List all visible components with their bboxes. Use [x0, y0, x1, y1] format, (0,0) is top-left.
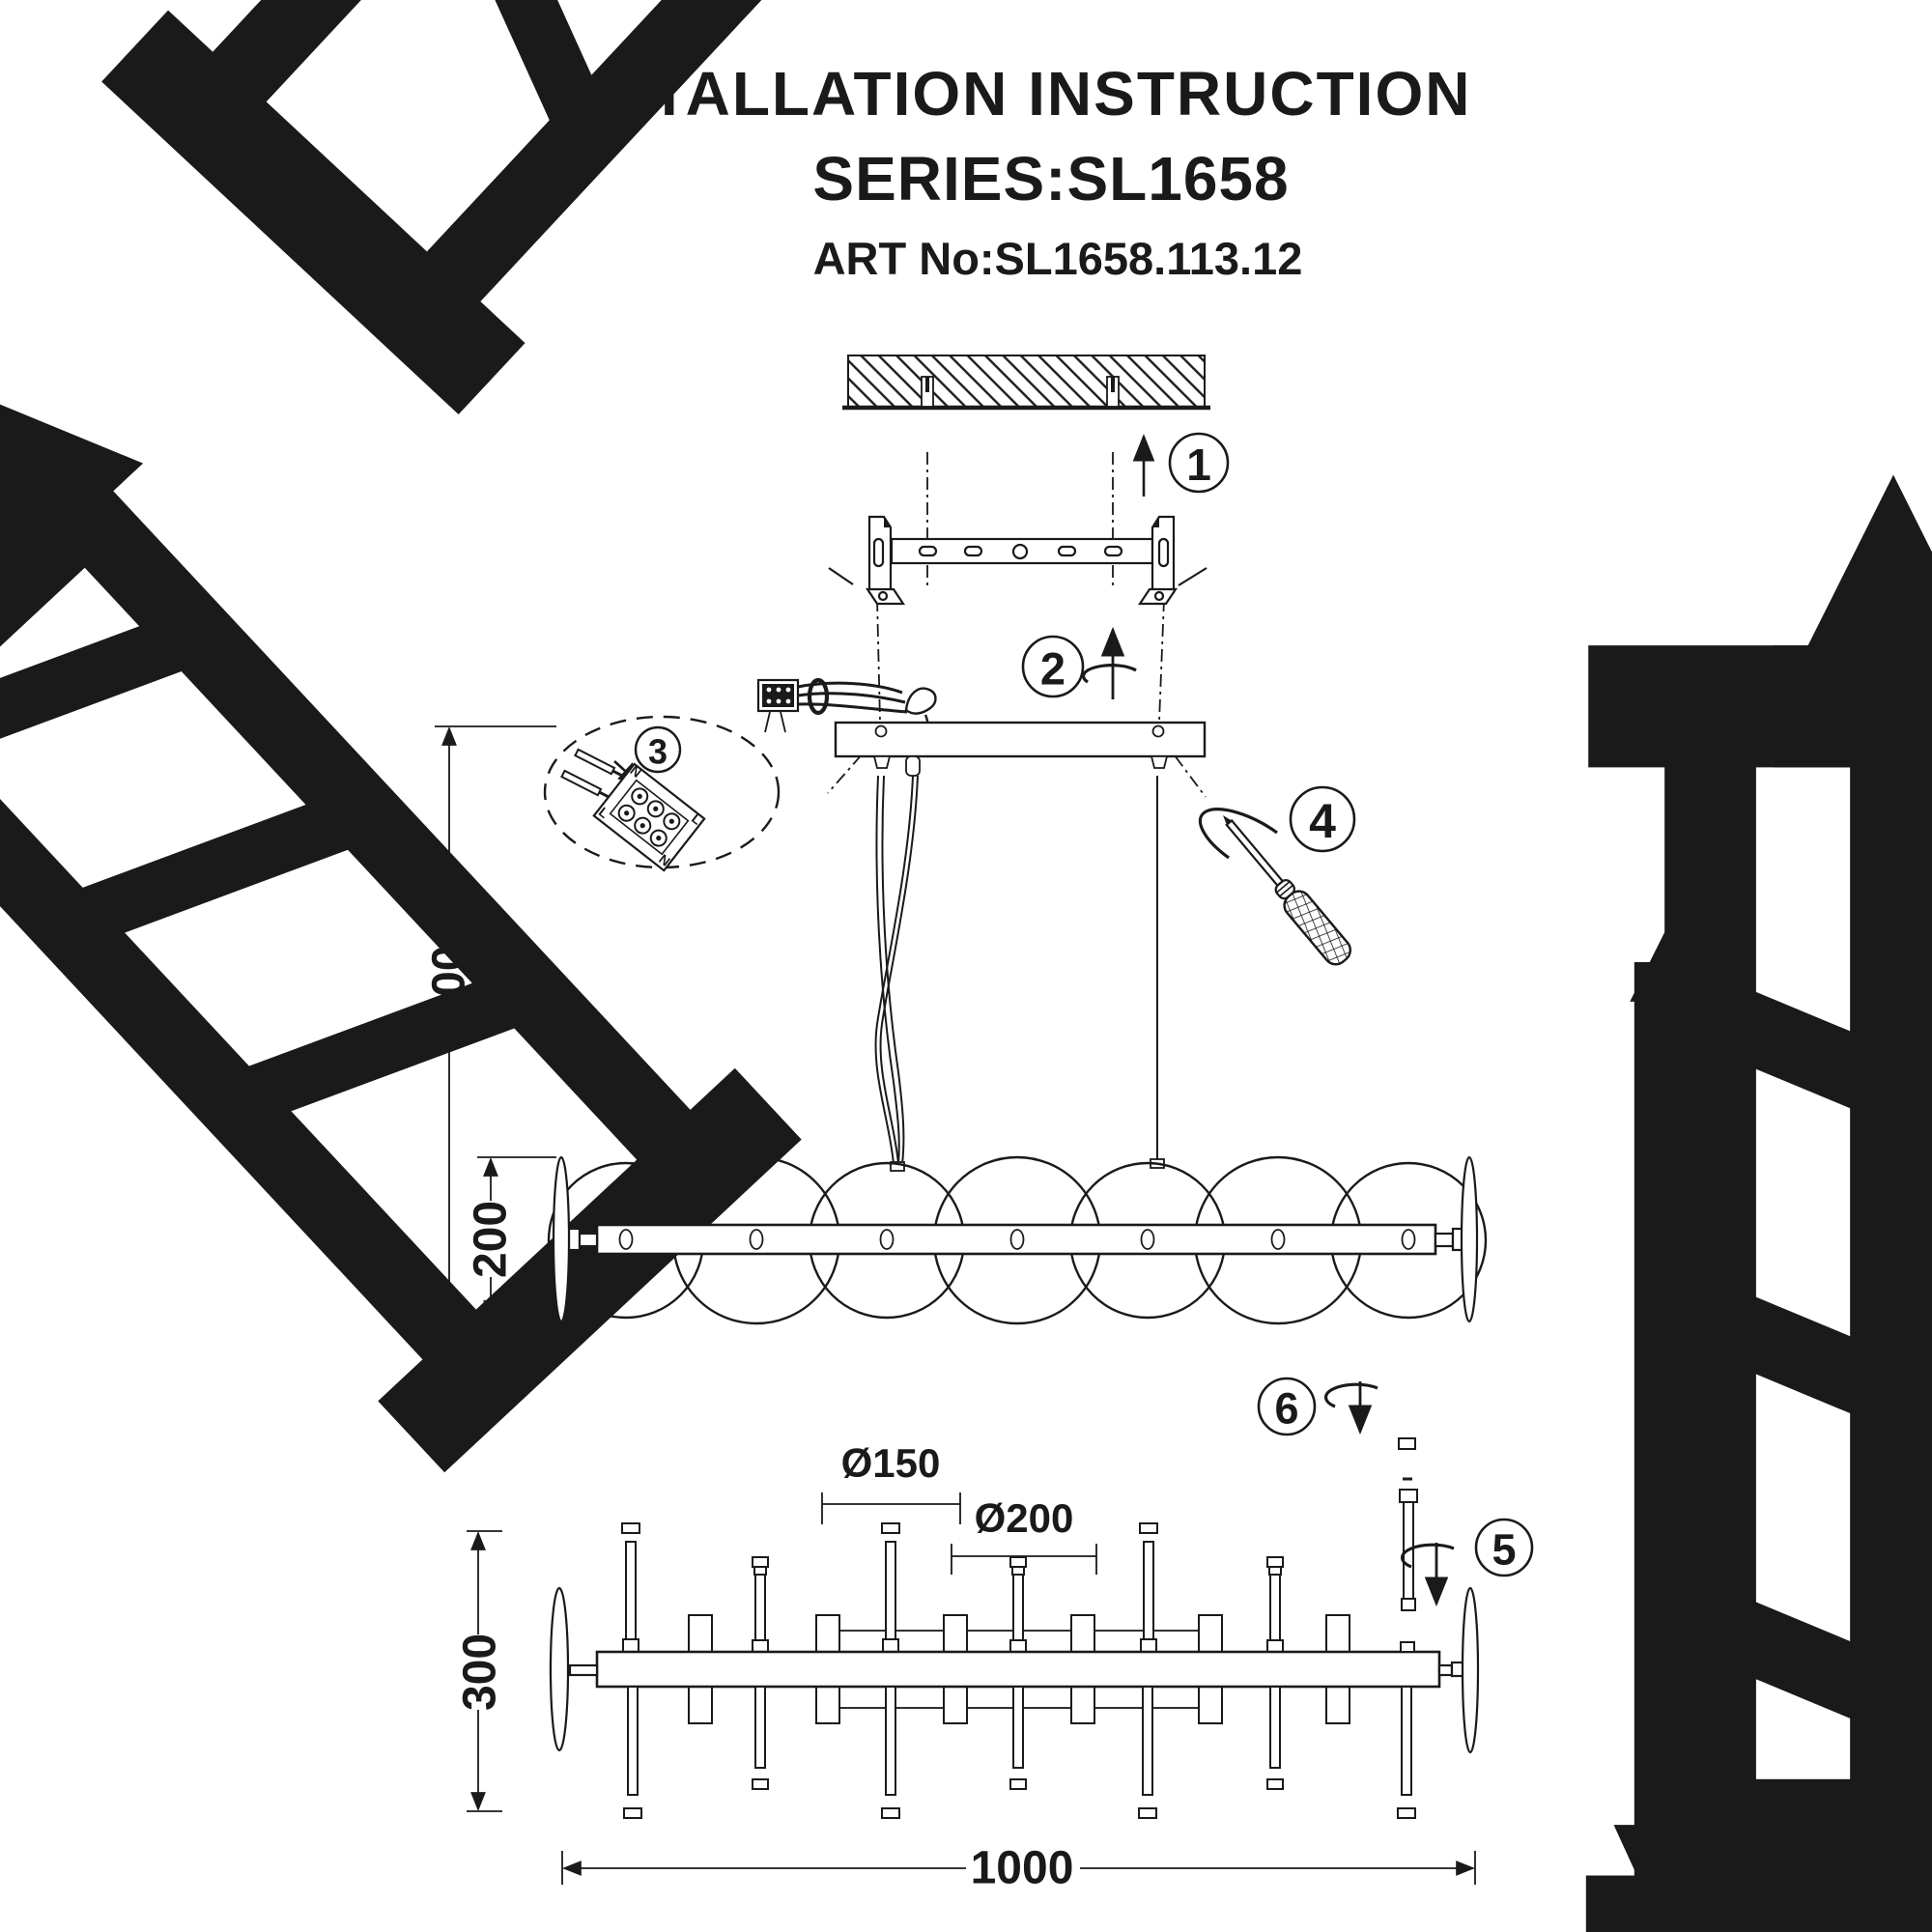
- rotate-arrow-icon: [1326, 1381, 1454, 1604]
- dim-1000: 1000: [562, 1843, 1475, 1894]
- dim-label-200: 200: [466, 1201, 517, 1278]
- dim-label-1500: 1500: [424, 946, 475, 1049]
- dim-label-1000: 1000: [971, 1843, 1074, 1894]
- instruction-sheet: INSTALLATION INSTRUCTION SERIES:SL1658 A…: [0, 0, 1932, 1932]
- dim-label-300: 300: [455, 1634, 506, 1711]
- step-1-badge: 1: [1170, 434, 1228, 492]
- step-4-badge: 4: [1291, 787, 1354, 851]
- drill-hole: [1107, 377, 1119, 407]
- terminal-block-detail: N L L N: [594, 762, 706, 871]
- rotate-arrow-icon: [1084, 630, 1136, 699]
- svg-text:6: 6: [1274, 1384, 1298, 1434]
- svg-text:5: 5: [1492, 1525, 1516, 1575]
- dim-d150: Ø150: [822, 1440, 960, 1524]
- dim-label-d150: Ø150: [841, 1440, 941, 1486]
- ceiling: [842, 355, 1210, 408]
- svg-text:3: 3: [648, 732, 668, 772]
- canopy: [836, 723, 1205, 776]
- step-5-badge: 5: [1476, 1520, 1532, 1576]
- mounting-bracket: [829, 517, 1207, 604]
- dim-label-d200: Ø200: [975, 1495, 1074, 1541]
- step-6-badge: 6: [1259, 1378, 1315, 1435]
- wiring-detail-bubble: N L L N 3: [545, 717, 779, 870]
- dim-300: 300: [455, 1531, 506, 1811]
- drill-hole: [922, 377, 933, 407]
- supply-wires: [798, 683, 907, 712]
- svg-text:2: 2: [1040, 643, 1065, 695]
- suspension-cables: [876, 776, 1164, 1171]
- step-3-badge: 3: [636, 727, 680, 772]
- installation-diagram: 1: [0, 0, 1932, 1932]
- terminal-block: [758, 680, 798, 732]
- step-2-badge: 2: [1023, 637, 1083, 696]
- svg-text:4: 4: [1309, 794, 1336, 848]
- canopy-screw-icon: [135, 0, 1435, 379]
- svg-text:1: 1: [1186, 440, 1211, 490]
